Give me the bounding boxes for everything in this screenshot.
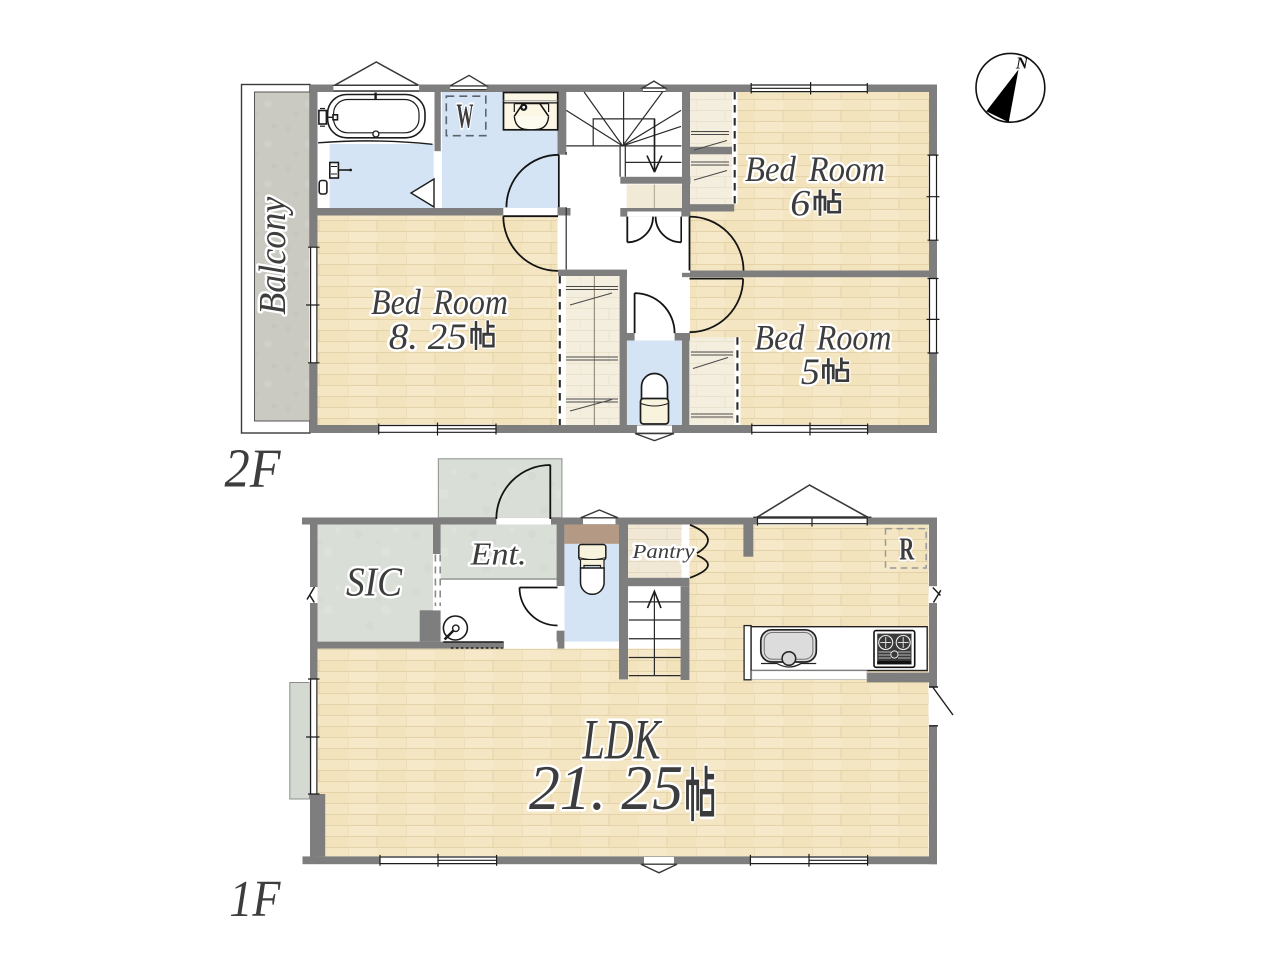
svg-text:5: 5: [801, 352, 820, 393]
svg-text:1F: 1F: [229, 871, 281, 928]
svg-text:R: R: [899, 531, 915, 567]
svg-text:Balcony: Balcony: [252, 197, 294, 315]
svg-text:Bed Room: Bed Room: [371, 282, 508, 322]
svg-text:N: N: [1015, 54, 1029, 73]
svg-text:8. 25: 8. 25: [389, 317, 467, 358]
svg-text:Bed Room: Bed Room: [755, 318, 892, 358]
svg-text:Bed Room: Bed Room: [745, 149, 885, 189]
svg-text:W: W: [457, 97, 474, 136]
svg-text:6: 6: [790, 184, 811, 225]
svg-text:21. 25: 21. 25: [529, 753, 683, 823]
svg-text:Ent.: Ent.: [470, 536, 527, 572]
svg-text:2F: 2F: [225, 438, 282, 499]
svg-text:Pantry: Pantry: [631, 541, 694, 563]
svg-text:SIC: SIC: [346, 559, 403, 605]
